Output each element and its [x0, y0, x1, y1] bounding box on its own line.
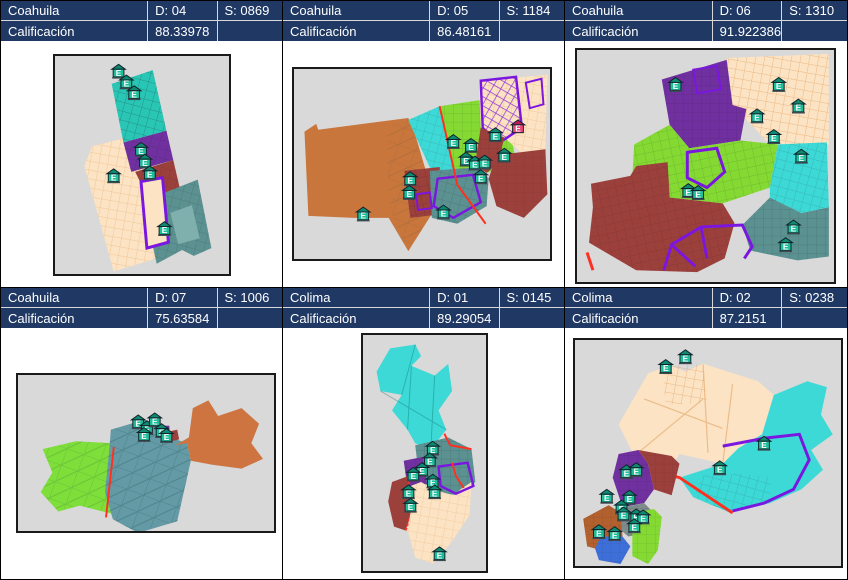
district-report-grid: Coahuila D: 04 S: 0869 Calificación 88.3… [0, 0, 848, 580]
map-frame [575, 48, 836, 284]
map-frame [53, 54, 231, 276]
district-number: D: 02 [712, 288, 782, 308]
state-name: Coahuila [1, 288, 147, 308]
score-value: 91.922386 [712, 21, 782, 41]
score-label: Calificación [1, 21, 147, 41]
district-number: D: 07 [147, 288, 216, 308]
panel-header: Coahuila D: 06 S: 1310 Calificación 91.9… [565, 1, 847, 41]
district-number: D: 04 [147, 1, 216, 21]
district-map [575, 340, 841, 566]
score-label: Calificación [565, 308, 712, 328]
section-number: S: 1006 [217, 288, 282, 308]
score-label: Calificación [283, 21, 429, 41]
state-name: Coahuila [283, 1, 429, 21]
panel-coahuila-d06: Coahuila D: 06 S: 1310 Calificación 91.9… [565, 1, 847, 288]
panel-coahuila-d05: Coahuila D: 05 S: 1184 Calificación 86.4… [283, 1, 565, 288]
score-label: Calificación [283, 308, 429, 328]
district-map [18, 375, 274, 531]
empty-cell [217, 21, 282, 41]
score-label: Calificación [565, 21, 712, 41]
section-number: S: 0145 [499, 288, 564, 308]
panel-coahuila-d04: Coahuila D: 04 S: 0869 Calificación 88.3… [1, 1, 283, 288]
panel-header: Coahuila D: 07 S: 1006 Calificación 75.6… [1, 288, 282, 328]
section-number: S: 1310 [781, 1, 847, 21]
district-map [55, 56, 229, 274]
svg-text:E: E [515, 123, 521, 133]
panel-colima-d01: Colima D: 01 S: 0145 Calificación 89.290… [283, 288, 565, 579]
state-name: Colima [283, 288, 429, 308]
district-number: D: 01 [429, 288, 498, 308]
empty-cell [499, 21, 564, 41]
panel-header: Colima D: 02 S: 0238 Calificación 87.215… [565, 288, 847, 328]
district-map [363, 335, 486, 571]
empty-cell [781, 308, 847, 328]
score-value: 75.63584 [147, 308, 216, 328]
score-value: 89.29054 [429, 308, 498, 328]
section-number: S: 0238 [781, 288, 847, 308]
panel-header: Coahuila D: 05 S: 1184 Calificación 86.4… [283, 1, 564, 41]
district-map [577, 50, 834, 282]
map-frame [573, 338, 843, 568]
state-name: Coahuila [565, 1, 712, 21]
panel-coahuila-d07: Coahuila D: 07 S: 1006 Calificación 75.6… [1, 288, 283, 579]
empty-cell [217, 308, 282, 328]
section-number: S: 0869 [217, 1, 282, 21]
score-value: 86.48161 [429, 21, 498, 41]
panel-colima-d02: Colima D: 02 S: 0238 Calificación 87.215… [565, 288, 847, 579]
district-number: D: 06 [712, 1, 782, 21]
district-map: E [294, 69, 550, 259]
empty-cell [499, 308, 564, 328]
score-value: 88.33978 [147, 21, 216, 41]
section-number: S: 1184 [499, 1, 564, 21]
state-name: Coahuila [1, 1, 147, 21]
panel-header: Colima D: 01 S: 0145 Calificación 89.290… [283, 288, 564, 328]
map-frame [16, 373, 276, 533]
map-frame: E [292, 67, 552, 261]
score-label: Calificación [1, 308, 147, 328]
score-value: 87.2151 [712, 308, 782, 328]
map-frame [361, 333, 488, 573]
empty-cell [781, 21, 847, 41]
state-name: Colima [565, 288, 712, 308]
panel-header: Coahuila D: 04 S: 0869 Calificación 88.3… [1, 1, 282, 41]
district-number: D: 05 [429, 1, 498, 21]
